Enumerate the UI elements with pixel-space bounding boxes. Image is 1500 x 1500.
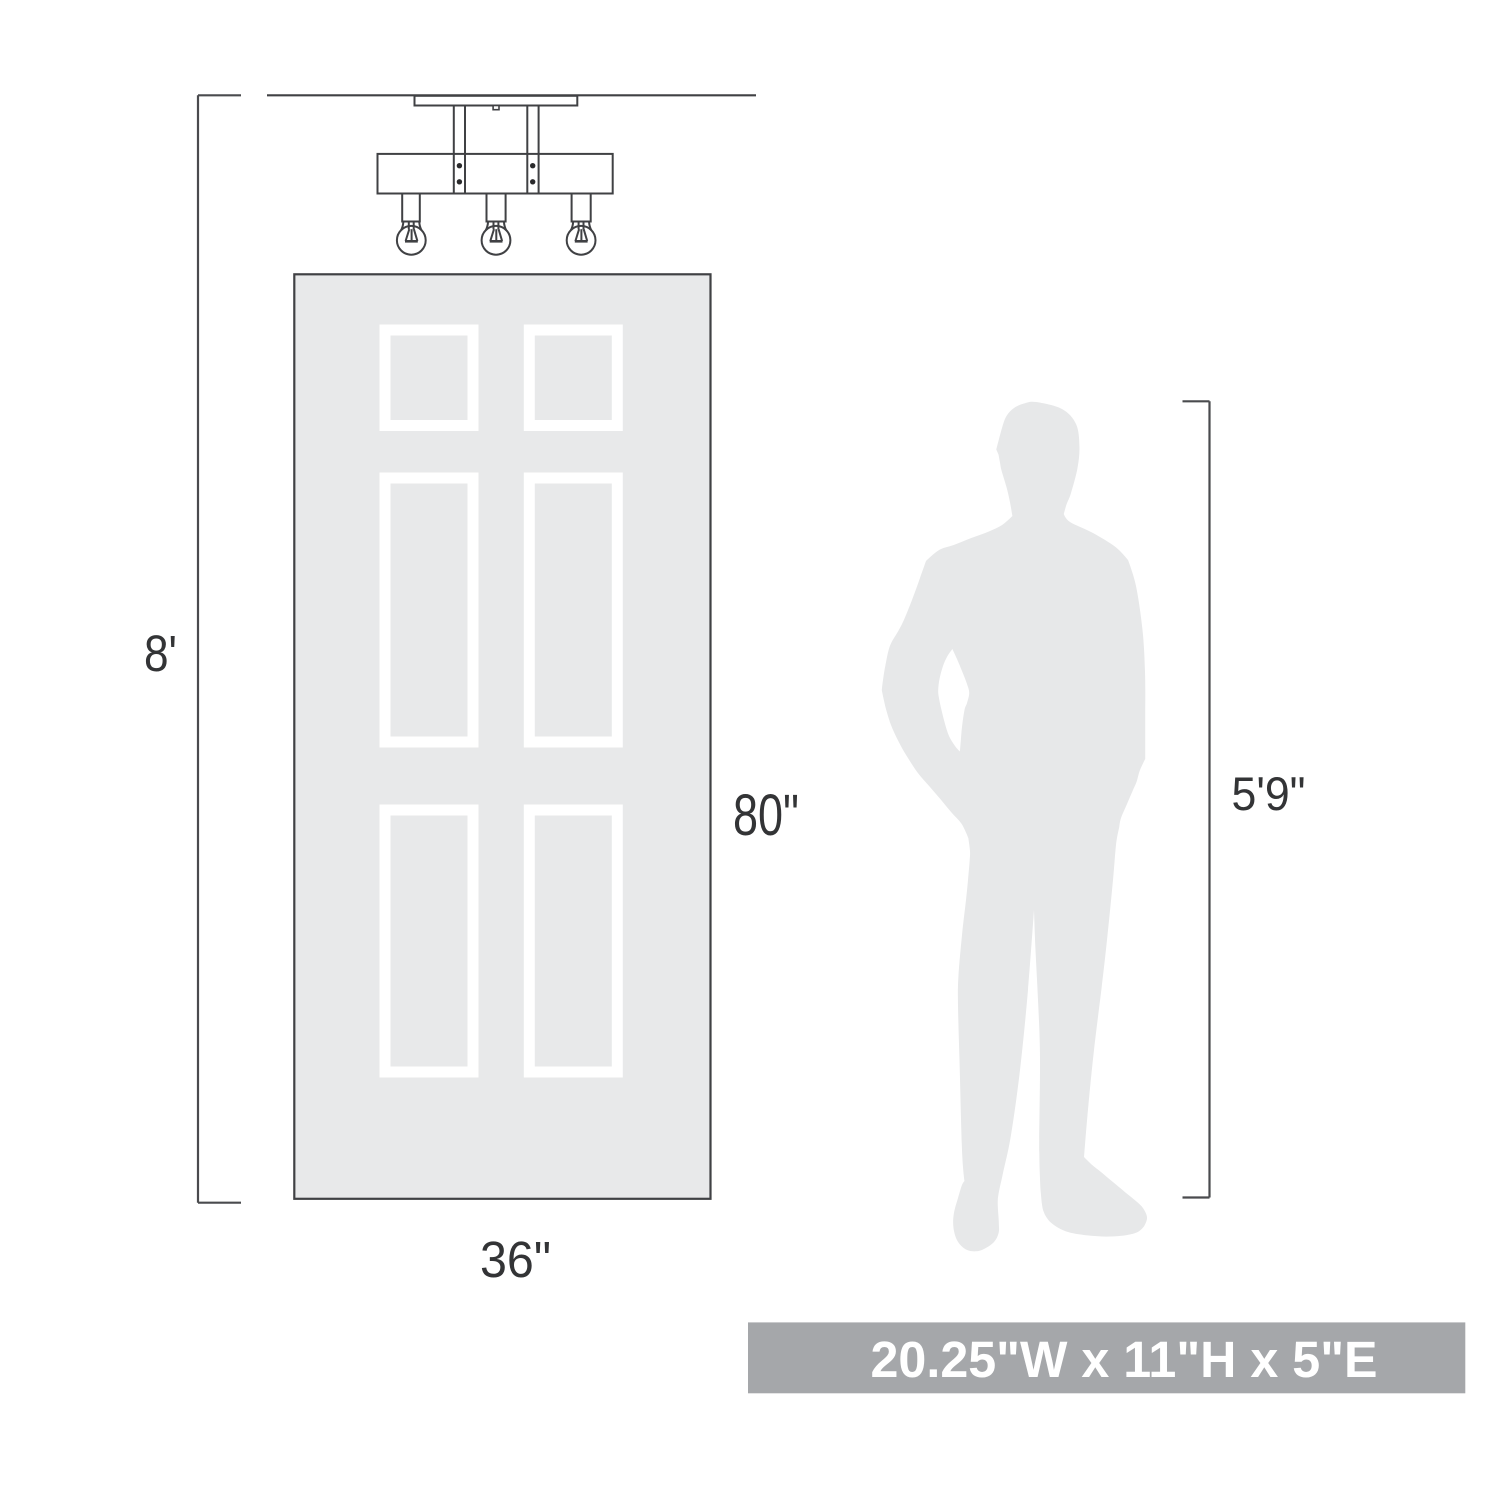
svg-text:5'9": 5'9" xyxy=(1232,767,1306,820)
svg-text:20.25"W x 11"H x 5"E: 20.25"W x 11"H x 5"E xyxy=(871,1331,1378,1388)
svg-text:8': 8' xyxy=(144,625,177,682)
svg-text:80": 80" xyxy=(733,783,799,848)
svg-text:36": 36" xyxy=(480,1231,551,1288)
